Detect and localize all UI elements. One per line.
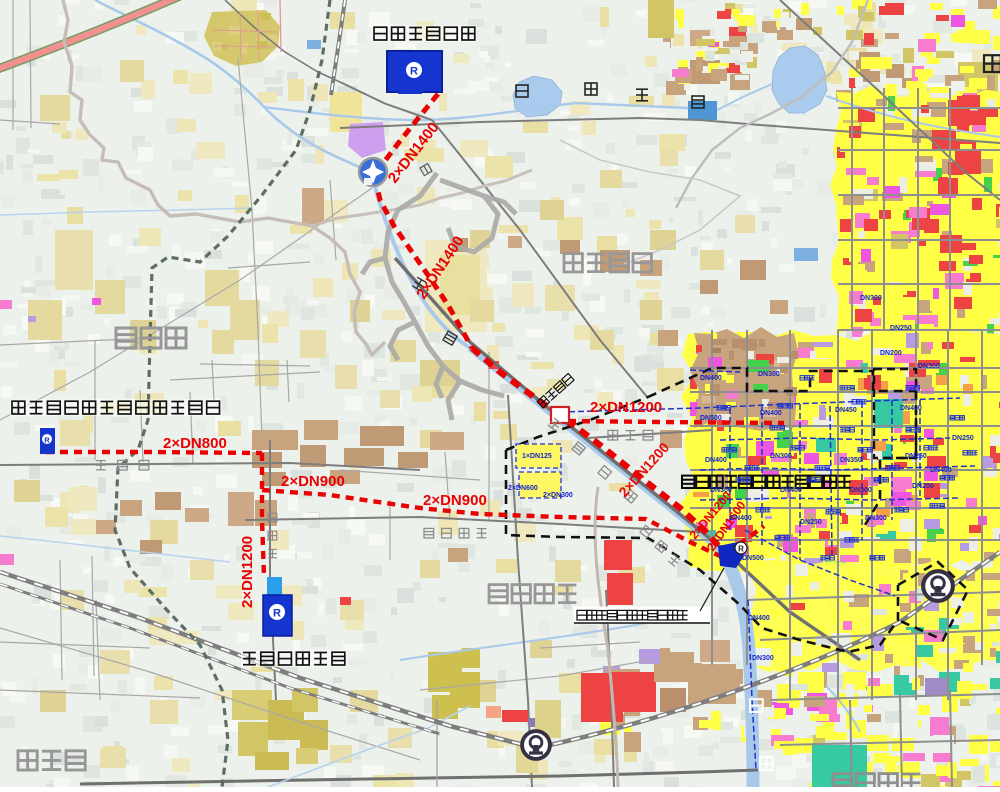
svg-text:DN400: DN400: [730, 515, 752, 522]
svg-text:DN500: DN500: [742, 555, 764, 562]
svg-text:DN400: DN400: [748, 615, 770, 622]
svg-text:DN400: DN400: [760, 410, 782, 417]
svg-text:2×DN1200: 2×DN1200: [590, 399, 662, 416]
svg-text:R: R: [410, 66, 418, 78]
svg-text:R: R: [273, 608, 281, 620]
svg-text:R: R: [44, 436, 50, 445]
svg-text:2×DN900: 2×DN900: [281, 473, 345, 490]
svg-text:DN350: DN350: [840, 457, 862, 464]
svg-text:DN400: DN400: [705, 457, 727, 464]
svg-text:DN300: DN300: [770, 453, 792, 460]
svg-text:DN400: DN400: [780, 487, 802, 494]
svg-text:DN250: DN250: [952, 435, 974, 442]
svg-text:DN300: DN300: [710, 487, 732, 494]
svg-text:DN300: DN300: [850, 487, 872, 494]
svg-text:DN300: DN300: [860, 295, 882, 302]
svg-text:DN200: DN200: [912, 483, 934, 490]
svg-text:DN200: DN200: [880, 350, 902, 357]
svg-text:DN300: DN300: [865, 515, 887, 522]
svg-text:DN400: DN400: [700, 375, 722, 382]
svg-text:DN400: DN400: [930, 467, 952, 474]
svg-text:DN300: DN300: [918, 363, 940, 370]
svg-text:DN250: DN250: [890, 325, 912, 332]
svg-text:DN500: DN500: [700, 415, 722, 422]
svg-text:2×DN1200: 2×DN1200: [239, 536, 256, 608]
svg-text:1×DN125: 1×DN125: [522, 453, 552, 460]
svg-text:2×DN300: 2×DN300: [543, 492, 573, 499]
svg-text:2×DN600: 2×DN600: [508, 485, 538, 492]
svg-text:2×DN800: 2×DN800: [163, 435, 227, 452]
svg-text:2×DN900: 2×DN900: [423, 492, 487, 509]
svg-text:DN450: DN450: [835, 407, 857, 414]
svg-text:DN250: DN250: [905, 453, 927, 460]
svg-text:DN300: DN300: [758, 371, 780, 378]
svg-text:R: R: [738, 545, 744, 554]
svg-text:DN400: DN400: [900, 405, 922, 412]
svg-text:DN300: DN300: [752, 655, 774, 662]
svg-text:DN250: DN250: [800, 519, 822, 526]
